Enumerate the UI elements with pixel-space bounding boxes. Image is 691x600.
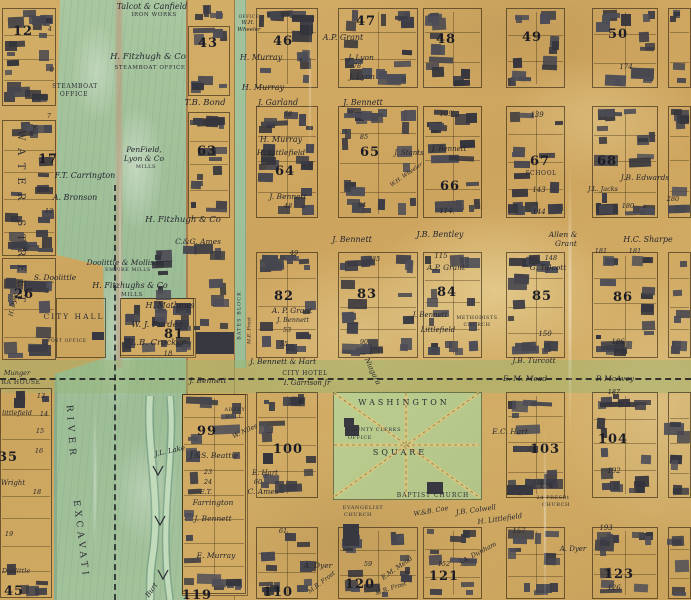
place-label: STEAMBOAT OFFICE (115, 66, 186, 72)
building-footprint (191, 201, 196, 207)
block-outline (56, 298, 106, 358)
block-number: 99 (197, 424, 217, 439)
lot-line (670, 329, 689, 330)
block-number: 123 (604, 567, 634, 582)
building-footprint (542, 65, 557, 71)
building-footprint (259, 15, 265, 27)
place-label: EVANGELIST (343, 506, 384, 511)
building-footprint (259, 164, 266, 171)
building-footprint (550, 583, 558, 592)
block-number: 12 (13, 24, 33, 39)
building-footprint (212, 166, 221, 175)
lot-number: 109 (439, 111, 452, 118)
lot-number: 193 (599, 525, 612, 532)
building-footprint (534, 533, 540, 544)
building-footprint (38, 33, 46, 39)
building-footprint (632, 532, 644, 538)
lot-number: 4 (48, 26, 52, 33)
owner-name-label: I. Garrison Jr (284, 380, 331, 387)
place-label: CHURCH (344, 513, 372, 518)
owner-name-label: E.T. (200, 489, 212, 496)
owner-name-label: Doolittle & Mollison (87, 259, 164, 267)
building-footprint (262, 336, 271, 347)
lot-line (670, 473, 689, 474)
building-footprint (547, 469, 557, 474)
building-footprint (508, 316, 514, 321)
building-footprint (194, 326, 200, 331)
building-footprint (606, 534, 612, 541)
place-label: WATER STREET (15, 130, 25, 309)
lot-line (670, 278, 689, 279)
place-label: BATES BLOCK (238, 291, 243, 340)
building-footprint (427, 529, 434, 534)
block-number: 43 (198, 36, 218, 51)
lot-line (536, 12, 537, 84)
block-number: 66 (440, 179, 460, 194)
building-footprint (547, 557, 560, 564)
building-footprint (454, 80, 470, 86)
lot-number: 181 (629, 248, 641, 255)
building-footprint (184, 510, 195, 518)
lot-number: 150 (538, 331, 551, 338)
building-footprint (542, 348, 548, 355)
building-footprint (259, 423, 267, 434)
owner-name-label: Grant (555, 240, 577, 248)
owner-name-label: J. Bennett (332, 236, 372, 244)
building-footprint (531, 401, 552, 406)
building-footprint (597, 418, 605, 429)
lot-number: 180 (622, 203, 634, 210)
lot-number: 60 (254, 479, 262, 486)
building-footprint (302, 75, 309, 84)
building-footprint (344, 180, 351, 192)
building-footprint (400, 344, 408, 351)
building-footprint (35, 187, 53, 194)
building-footprint (200, 319, 209, 326)
building-footprint (514, 161, 530, 169)
lot-line (4, 199, 54, 200)
lot-number: 187 (608, 389, 620, 396)
building-footprint (508, 548, 516, 559)
building-footprint (158, 271, 168, 275)
owner-name-label: Littlefield (421, 327, 455, 334)
block-number: 63 (197, 144, 217, 159)
lot-line (670, 443, 689, 444)
block-number: 17 (38, 152, 58, 167)
block-number: 64 (275, 164, 295, 179)
building-footprint (297, 542, 310, 547)
lot-number: 53 (283, 327, 291, 334)
building-footprint (466, 113, 477, 123)
building-footprint (599, 137, 607, 144)
building-footprint (461, 582, 474, 587)
place-label: RA HOUSE (1, 380, 40, 386)
owner-name-label: J. Bennett (194, 515, 231, 523)
building-footprint (197, 173, 203, 180)
building-footprint (269, 402, 275, 411)
building-footprint (266, 565, 277, 571)
building-footprint (428, 347, 440, 355)
lot-number: 3 (45, 288, 49, 295)
owner-name-label: L.B. Crocker (131, 339, 186, 348)
owner-name-label: J. Bennett (343, 99, 383, 107)
owner-name-label: J. Garland (258, 99, 298, 107)
place-label: POST OFFICE (47, 340, 86, 345)
place-label: MILLS (136, 165, 156, 170)
building-footprint (515, 445, 527, 451)
public-building-footprint (507, 485, 533, 495)
building-footprint (371, 113, 383, 123)
place-label: STEAMBOAT (52, 84, 98, 90)
owner-name-label: T.B. Bond (184, 99, 225, 108)
building-footprint (260, 322, 273, 331)
public-building-footprint (92, 332, 104, 340)
building-footprint (640, 46, 654, 51)
block-number: 84 (437, 285, 457, 300)
building-footprint (614, 349, 626, 357)
building-footprint (431, 289, 437, 299)
owner-name-label: J. Stants (394, 150, 423, 157)
building-footprint (552, 41, 559, 50)
owner-name-label: J. Bennett (432, 146, 467, 153)
building-footprint (264, 118, 277, 124)
building-footprint (670, 16, 676, 22)
owner-name-label: C.&G. Ames (175, 238, 221, 246)
building-footprint (296, 331, 309, 339)
place-label: ABBEY (225, 408, 246, 413)
building-footprint (186, 535, 193, 541)
lot-line (670, 578, 689, 579)
lot-number: 114 (439, 208, 452, 215)
owner-name-label: J. Bennett (277, 317, 309, 324)
owner-name-label: J.B. Bentley (417, 231, 464, 239)
building-footprint (600, 547, 606, 556)
building-footprint (402, 122, 409, 134)
building-footprint (642, 321, 656, 330)
building-footprint (400, 111, 407, 121)
building-footprint (638, 138, 648, 142)
lot-line (670, 307, 689, 308)
owner-name-label: H. Murray (242, 84, 284, 92)
building-footprint (235, 586, 241, 590)
building-footprint (36, 580, 49, 585)
owner-name-label: A. Dyer (560, 546, 587, 553)
building-footprint (306, 125, 313, 130)
owner-name-label: H. Murray (240, 54, 282, 62)
building-footprint (25, 124, 33, 131)
building-footprint (200, 397, 213, 408)
building-footprint (680, 116, 689, 124)
lot-line (2, 546, 50, 547)
building-footprint (646, 532, 653, 537)
place-label: OFFICE (348, 436, 372, 441)
building-footprint (643, 13, 650, 22)
building-footprint (445, 341, 452, 348)
lot-number: 126 (607, 585, 620, 592)
owner-name-label: J. Bennett (269, 193, 306, 201)
place-label: OFFICE (60, 92, 88, 98)
lot-number: 59 (364, 561, 372, 568)
building-footprint (306, 456, 316, 463)
building-footprint (193, 117, 204, 124)
building-footprint (624, 108, 636, 113)
building-footprint (468, 340, 478, 351)
owner-name-label: H. Fitzhugh & Co (145, 216, 221, 225)
building-footprint (156, 290, 172, 300)
lot-line (2, 469, 50, 470)
building-footprint (213, 299, 229, 307)
owner-name-label: M.E. Frost (248, 317, 253, 344)
building-footprint (603, 256, 614, 266)
building-footprint (599, 205, 613, 214)
lot-number: 16 (35, 448, 43, 455)
building-footprint (554, 120, 562, 125)
building-footprint (259, 258, 283, 270)
lot-number: 9 (50, 67, 54, 74)
lot-number: 181 (595, 248, 607, 255)
lot-number: 48 (284, 203, 292, 210)
building-footprint (258, 173, 274, 182)
lot-line (190, 190, 228, 191)
building-footprint (510, 111, 520, 121)
owner-name-label: A. P. Grant (272, 307, 312, 315)
lot-line (625, 110, 626, 214)
lot-line (670, 32, 689, 33)
building-footprint (512, 400, 528, 412)
building-footprint (621, 14, 631, 26)
building-footprint (597, 126, 608, 131)
building-footprint (645, 535, 652, 545)
place-label: SQUARE (373, 449, 427, 457)
building-footprint (629, 158, 651, 168)
block-number: 82 (274, 289, 294, 304)
place-label: OFFICE (239, 15, 260, 19)
building-footprint (674, 316, 681, 323)
lot-number: 144 (532, 209, 545, 216)
building-footprint (673, 62, 686, 70)
building-footprint (377, 199, 384, 210)
building-footprint (39, 300, 50, 312)
lot-line (670, 160, 689, 161)
building-footprint (395, 16, 408, 21)
lot-line (670, 418, 689, 419)
building-footprint (216, 11, 222, 19)
building-footprint (596, 335, 601, 339)
owner-name-label: H. Fitzhugh & Co (110, 53, 186, 62)
building-footprint (632, 256, 644, 266)
block-number: 85 (532, 289, 552, 304)
building-footprint (42, 237, 52, 248)
historic-city-plat-map[interactable]: 1217263545436381991194647484950646566676… (0, 0, 691, 600)
owner-name-label: H. Mathews (145, 302, 194, 310)
place-label: IRON WORKS (131, 13, 177, 19)
building-footprint (35, 588, 47, 596)
building-footprint (344, 113, 371, 118)
building-footprint (14, 398, 25, 409)
lot-line (670, 549, 689, 550)
building-footprint (220, 323, 229, 329)
lot-number: 58 (284, 111, 292, 118)
building-footprint (203, 5, 211, 14)
building-footprint (432, 66, 445, 77)
building-footprint (342, 312, 355, 324)
owner-name-label: A.P. Grant (323, 34, 364, 42)
building-footprint (601, 448, 609, 457)
building-footprint (550, 182, 560, 193)
owner-name-label: Allen & (549, 231, 578, 239)
building-footprint (26, 244, 38, 250)
owner-name-label: W. J. Purdee (131, 321, 183, 330)
building-footprint (38, 248, 53, 252)
building-footprint (209, 279, 223, 288)
building-footprint (195, 14, 203, 20)
building-footprint (36, 229, 48, 236)
owner-name-label: Munger (4, 370, 30, 377)
block-outline (668, 392, 691, 498)
lot-number: 156 (539, 483, 552, 490)
owner-name-label: A.P. Grant (427, 264, 465, 272)
place-label: 2d PRESBt (536, 496, 569, 501)
owner-name-label: E. Murray (197, 552, 236, 560)
building-footprint (35, 327, 50, 338)
building-footprint (599, 278, 615, 285)
building-footprint (300, 25, 312, 35)
building-footprint (668, 204, 690, 213)
building-footprint (512, 71, 526, 82)
building-footprint (279, 483, 302, 492)
lot-line (2, 496, 50, 497)
lot-number: 174 (619, 64, 632, 71)
building-footprint (649, 132, 655, 142)
place-label: COUNTY CLERKS (347, 428, 401, 433)
building-footprint (466, 182, 479, 187)
building-footprint (184, 578, 194, 585)
building-footprint (508, 204, 518, 213)
lot-number: 186 (611, 339, 624, 346)
owner-name-label: F.T. Carrington (55, 172, 116, 180)
building-footprint (190, 180, 201, 188)
owner-name-label: J. Bennett (413, 312, 448, 319)
building-footprint (450, 536, 462, 543)
owner-name-label: E.C. Hart (492, 428, 528, 436)
block-number: 104 (598, 432, 628, 447)
lot-line (453, 12, 454, 84)
building-footprint (7, 52, 15, 56)
owner-name-label: J.&S. Beattie (190, 452, 238, 460)
owner-name-label: H. Murray (260, 136, 302, 144)
block-number: 47 (356, 14, 376, 29)
building-footprint (292, 15, 314, 22)
lot-line (2, 518, 50, 519)
owner-name-label: H.C. Sharpe (623, 236, 673, 244)
building-footprint (378, 73, 401, 84)
building-footprint (677, 78, 686, 84)
building-footprint (429, 123, 444, 130)
lot-number: 13 (37, 393, 45, 400)
building-footprint (672, 536, 685, 547)
building-footprint (671, 346, 681, 355)
lot-number: 78 (353, 63, 361, 70)
building-footprint (463, 530, 476, 537)
owner-name-label: P. McAvoy (596, 375, 634, 383)
building-footprint (673, 592, 686, 596)
lot-number: 139 (530, 112, 543, 119)
building-footprint (634, 584, 648, 592)
building-footprint (5, 70, 12, 75)
building-footprint (397, 535, 403, 543)
building-footprint (643, 77, 652, 83)
building-footprint (4, 342, 18, 354)
owner-name-label: E. M. Mead (503, 375, 547, 383)
public-building-footprint (196, 332, 234, 354)
building-footprint (402, 49, 413, 55)
lot-line (4, 150, 54, 151)
building-footprint (398, 203, 406, 215)
building-footprint (192, 83, 204, 91)
building-footprint (410, 198, 416, 206)
building-footprint (39, 50, 49, 61)
building-footprint (210, 251, 225, 261)
owner-name-label: littlefield (2, 410, 32, 417)
lot-line (625, 531, 626, 595)
building-footprint (634, 481, 644, 493)
building-footprint (673, 485, 682, 495)
building-footprint (642, 286, 655, 295)
building-footprint (613, 535, 620, 544)
building-footprint (548, 204, 562, 214)
building-footprint (16, 391, 26, 399)
place-label: BAPTIST CHURCH (397, 493, 469, 499)
building-footprint (304, 265, 311, 270)
owner-name-label: J.B. Edwards (621, 174, 670, 182)
building-footprint (8, 353, 23, 358)
building-footprint (673, 290, 682, 296)
building-footprint (346, 21, 356, 32)
building-footprint (405, 567, 410, 574)
building-footprint (634, 400, 651, 405)
lot-number: 61 (279, 528, 287, 535)
block-number: 120 (345, 577, 375, 592)
building-footprint (304, 468, 314, 475)
building-footprint (466, 590, 473, 595)
place-label: MILLS (121, 293, 143, 299)
block-number: 86 (613, 290, 633, 305)
building-footprint (218, 83, 227, 87)
building-footprint (32, 16, 46, 26)
lot-line (625, 256, 626, 354)
building-footprint (524, 583, 530, 592)
building-footprint (521, 342, 535, 352)
building-footprint (641, 304, 654, 315)
building-footprint (604, 74, 626, 86)
block-number: 35 (0, 450, 18, 465)
lot-number: 23 (204, 469, 212, 476)
owner-name-label: W.H. (242, 21, 255, 27)
lot-number: 90 (360, 339, 368, 346)
block-number: 68 (597, 154, 617, 169)
river-boundary-dashed-line (114, 185, 116, 600)
block-number: 67 (530, 154, 550, 169)
building-footprint (671, 108, 682, 114)
owner-name-label: Wheeler (237, 28, 260, 34)
block-number: 110 (263, 585, 293, 600)
building-footprint (347, 324, 359, 335)
block-number: 49 (522, 30, 542, 45)
building-footprint (540, 14, 550, 24)
place-label: CHURCH (542, 503, 570, 508)
owner-name-label: E. Hart (252, 470, 278, 477)
building-footprint (545, 531, 559, 537)
